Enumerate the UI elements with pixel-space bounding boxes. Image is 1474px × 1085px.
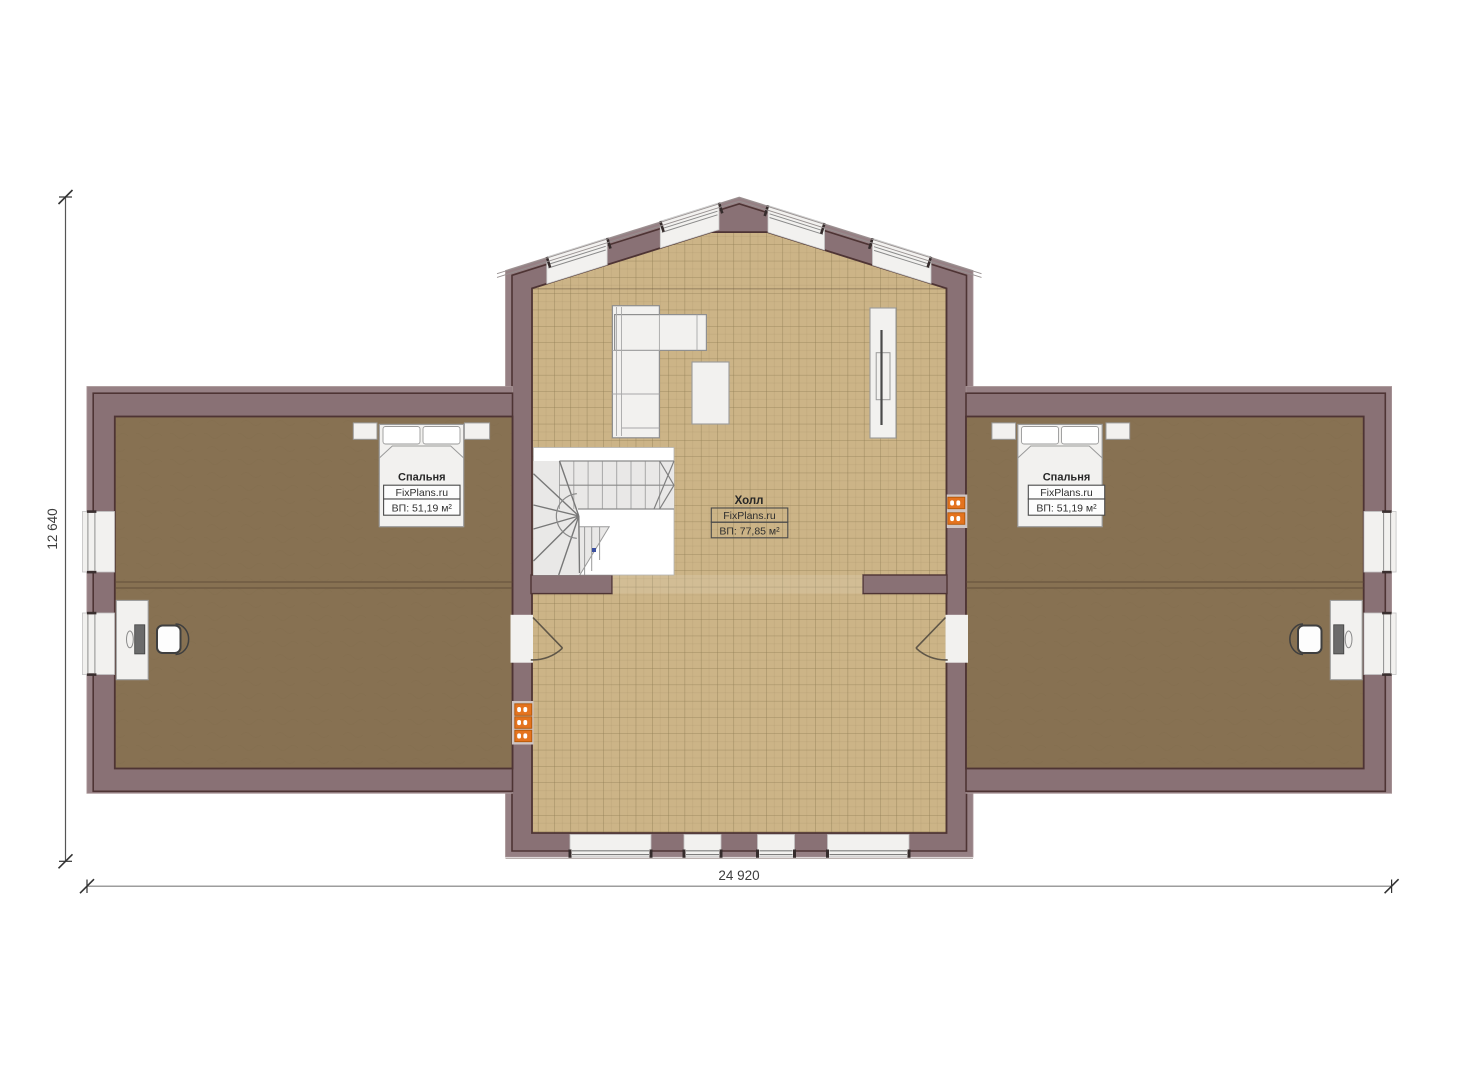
- svg-text:FixPlans.ru: FixPlans.ru: [723, 510, 776, 522]
- svg-text:FixPlans.ru: FixPlans.ru: [396, 487, 449, 499]
- svg-text:ВП: 51,19 м²: ВП: 51,19 м²: [1036, 503, 1097, 515]
- svg-text:FixPlans.ru: FixPlans.ru: [1040, 487, 1093, 499]
- svg-text:24 920: 24 920: [718, 868, 759, 883]
- svg-text:ВП: 77,85 м²: ВП: 77,85 м²: [719, 526, 780, 538]
- svg-text:Спальня: Спальня: [398, 472, 446, 484]
- svg-text:Спальня: Спальня: [1043, 472, 1091, 484]
- svg-text:Холл: Холл: [735, 495, 764, 507]
- svg-text:12 640: 12 640: [45, 508, 60, 549]
- svg-text:ВП: 51,19 м²: ВП: 51,19 м²: [392, 503, 453, 515]
